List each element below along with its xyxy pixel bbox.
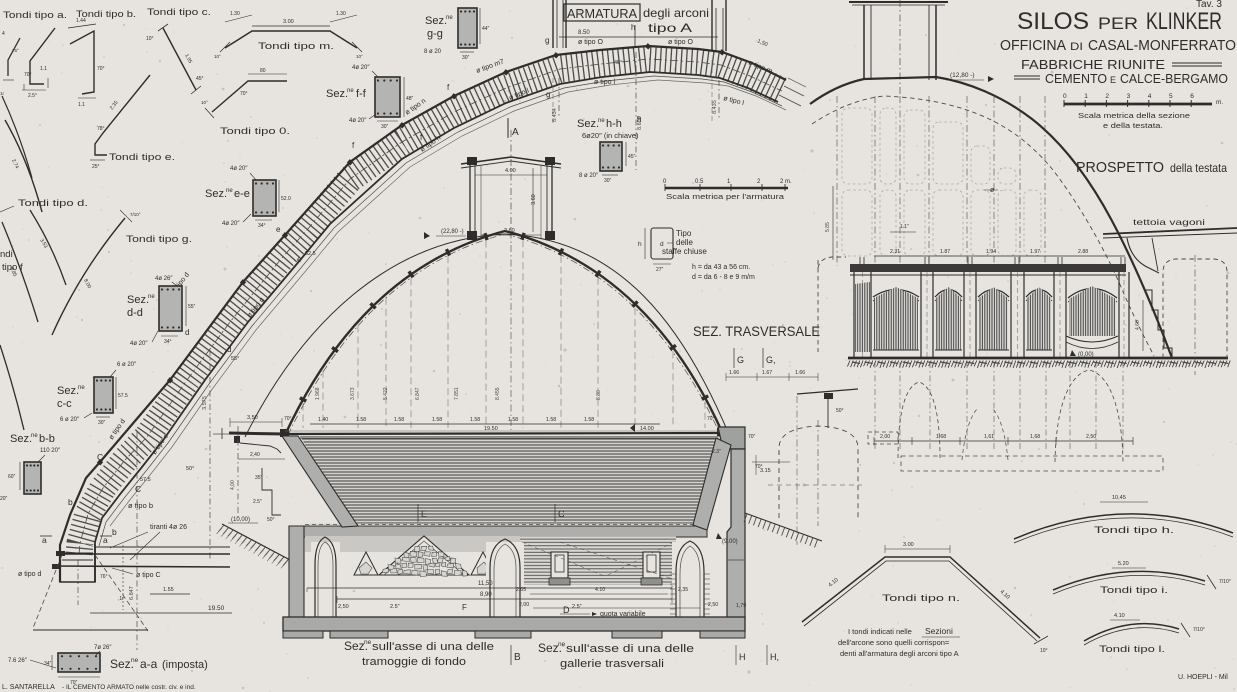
svg-text:Tondi tipo l.: Tondi tipo l. bbox=[1099, 644, 1165, 655]
svg-text:(0,00): (0,00) bbox=[1078, 352, 1094, 358]
svg-text:6.847: 6.847 bbox=[129, 586, 135, 600]
svg-text:m.: m. bbox=[1216, 99, 1223, 106]
svg-text:b-b: b-b bbox=[39, 433, 55, 445]
svg-text:70°: 70° bbox=[707, 416, 715, 422]
svg-text:1.968: 1.968 bbox=[315, 387, 321, 400]
svg-text:11,50: 11,50 bbox=[478, 581, 493, 587]
svg-text:a-a: a-a bbox=[140, 657, 158, 671]
svg-text:78°: 78° bbox=[97, 126, 105, 132]
svg-text:4.00: 4.00 bbox=[505, 168, 516, 174]
svg-text:Tondi tipo i.: Tondi tipo i. bbox=[1100, 585, 1168, 596]
svg-text:ø tipo O: ø tipo O bbox=[578, 39, 603, 46]
svg-text:E: E bbox=[1110, 75, 1116, 85]
svg-text:7/10°: 7/10° bbox=[1193, 627, 1205, 633]
svg-text:4.10: 4.10 bbox=[1114, 613, 1125, 619]
svg-text:3.60: 3.60 bbox=[531, 194, 537, 205]
svg-text:4: 4 bbox=[1148, 93, 1152, 100]
svg-text:60″: 60″ bbox=[8, 474, 16, 480]
svg-text:Sez.: Sez. bbox=[577, 118, 599, 130]
svg-text:ne: ne bbox=[364, 639, 372, 646]
svg-text:1.87: 1.87 bbox=[940, 249, 950, 255]
svg-text:5.85: 5.85 bbox=[825, 222, 831, 232]
svg-text:34″: 34″ bbox=[44, 661, 52, 667]
svg-text:8.455: 8.455 bbox=[495, 387, 501, 400]
svg-text:4.60: 4.60 bbox=[1135, 320, 1141, 330]
svg-text:44″: 44″ bbox=[482, 26, 490, 32]
svg-text:1r: 1r bbox=[0, 91, 5, 96]
svg-text:1.58: 1.58 bbox=[356, 417, 366, 423]
svg-text:30″: 30″ bbox=[462, 55, 470, 61]
svg-text:e-e: e-e bbox=[234, 188, 250, 200]
svg-text:a: a bbox=[103, 535, 108, 545]
svg-text:ø tipo l: ø tipo l bbox=[594, 79, 615, 86]
svg-text:1.66: 1.66 bbox=[729, 370, 739, 376]
svg-text:Tondi tipo c.: Tondi tipo c. bbox=[147, 7, 211, 18]
svg-text:8 ø 20″: 8 ø 20″ bbox=[579, 173, 599, 179]
svg-text:57.5: 57.5 bbox=[118, 393, 128, 399]
svg-text:30″: 30″ bbox=[381, 124, 389, 130]
svg-text:Tondi tipo g.: Tondi tipo g. bbox=[126, 234, 192, 245]
svg-text:(22,80 -): (22,80 -) bbox=[441, 229, 464, 235]
svg-text:ndi: ndi bbox=[0, 249, 13, 260]
svg-text:2.31: 2.31 bbox=[890, 249, 900, 255]
svg-text:staffe chiuse: staffe chiuse bbox=[662, 247, 707, 256]
svg-text:degli arconi: degli arconi bbox=[643, 6, 709, 20]
svg-text:Sez.: Sez. bbox=[127, 294, 149, 306]
svg-text:- IL CEMENTO ARMATO nelle cost: - IL CEMENTO ARMATO nelle costr. civ. e … bbox=[62, 684, 196, 691]
svg-text:1.55: 1.55 bbox=[163, 587, 174, 593]
svg-text:25°: 25° bbox=[92, 164, 100, 170]
svg-text:C: C bbox=[135, 484, 141, 494]
svg-text:ne: ne bbox=[598, 118, 605, 124]
svg-text:35″: 35″ bbox=[255, 475, 263, 481]
svg-text:e: e bbox=[276, 225, 281, 234]
svg-text:4ø 20″: 4ø 20″ bbox=[130, 341, 148, 347]
svg-text:0: 0 bbox=[1063, 93, 1067, 100]
svg-text:55°: 55° bbox=[231, 356, 239, 362]
svg-text:3.15: 3.15 bbox=[760, 468, 771, 474]
svg-text:6.847: 6.847 bbox=[415, 387, 421, 400]
svg-text:SILOS: SILOS bbox=[1017, 8, 1089, 35]
svg-text:e della testata.: e della testata. bbox=[1103, 121, 1163, 130]
svg-text:h = da 43 a 56 cm.: h = da 43 a 56 cm. bbox=[692, 264, 750, 271]
svg-text:30″: 30″ bbox=[604, 178, 612, 184]
svg-text:ne: ne bbox=[78, 385, 85, 391]
svg-text:h-h: h-h bbox=[606, 118, 622, 130]
svg-text:2,00: 2,00 bbox=[519, 602, 529, 608]
svg-text:b: b bbox=[68, 497, 73, 507]
svg-text:14.00: 14.00 bbox=[640, 426, 654, 432]
svg-text:(10,00): (10,00) bbox=[231, 517, 250, 523]
svg-text:50°: 50° bbox=[836, 408, 844, 414]
svg-text:1,68: 1,68 bbox=[936, 434, 946, 440]
svg-text:Tondi tipo m.: Tondi tipo m. bbox=[258, 41, 334, 52]
svg-text:ARMATURA: ARMATURA bbox=[567, 6, 637, 21]
svg-text:sull'asse di una delle: sull'asse di una delle bbox=[566, 643, 694, 655]
svg-text:c-c: c-c bbox=[57, 398, 72, 410]
svg-text:ø tipo O: ø tipo O bbox=[668, 39, 693, 46]
svg-text:52.5: 52.5 bbox=[305, 251, 316, 257]
svg-text:PER: PER bbox=[1098, 14, 1138, 33]
svg-text:KLINKER: KLINKER bbox=[1146, 8, 1222, 35]
svg-text:6 ø 20″: 6 ø 20″ bbox=[117, 362, 137, 368]
svg-text:1.1: 1.1 bbox=[78, 102, 85, 108]
svg-text:H: H bbox=[739, 652, 746, 662]
svg-text:2,50: 2,50 bbox=[708, 602, 718, 608]
svg-text:g: g bbox=[545, 36, 549, 45]
svg-text:B: B bbox=[514, 652, 521, 663]
svg-text:Scala metrica della sezione: Scala metrica della sezione bbox=[1078, 111, 1190, 120]
svg-text:(imposta): (imposta) bbox=[162, 659, 208, 671]
svg-text:7/10°: 7/10° bbox=[1219, 579, 1231, 585]
svg-text:Scala metrica per l'armatura: Scala metrica per l'armatura bbox=[666, 192, 785, 201]
svg-text:6ø20″ (in chiave): 6ø20″ (in chiave) bbox=[582, 131, 639, 140]
svg-text:8,90: 8,90 bbox=[480, 592, 492, 598]
svg-text:ne: ne bbox=[347, 88, 354, 94]
svg-text:5.20: 5.20 bbox=[1118, 561, 1129, 567]
svg-text:(9.00): (9.00) bbox=[722, 539, 738, 545]
svg-text:ø: ø bbox=[990, 187, 995, 194]
svg-text:della testata: della testata bbox=[1170, 161, 1227, 175]
svg-text:70°: 70° bbox=[240, 91, 248, 97]
svg-text:DI: DI bbox=[1070, 41, 1083, 53]
svg-text:10°: 10° bbox=[146, 36, 154, 42]
svg-text:ne: ne bbox=[558, 641, 566, 648]
svg-text:48″: 48″ bbox=[406, 96, 414, 102]
svg-text:Tondi tipo h.: Tondi tipo h. bbox=[1094, 525, 1174, 536]
svg-text:8.80: 8.80 bbox=[596, 390, 602, 400]
svg-text:L. SANTARELLA: L. SANTARELLA bbox=[2, 684, 55, 691]
svg-text:34°: 34° bbox=[258, 223, 266, 229]
svg-text:I tondi indicati nelle: I tondi indicati nelle bbox=[848, 627, 912, 636]
svg-text:70″: 70″ bbox=[748, 434, 756, 440]
svg-text:3,50: 3,50 bbox=[247, 415, 258, 421]
svg-text:70°: 70° bbox=[284, 416, 292, 422]
svg-text:tiranti 4ø 26: tiranti 4ø 26 bbox=[150, 524, 187, 531]
svg-text:3.575: 3.575 bbox=[202, 396, 208, 410]
svg-text:5: 5 bbox=[1169, 93, 1173, 100]
svg-text:1.67: 1.67 bbox=[762, 370, 772, 376]
svg-text:d = da 6 - 8 e 9 m/m: d = da 6 - 8 e 9 m/m bbox=[692, 274, 755, 281]
svg-text:8 ø 20: 8 ø 20 bbox=[424, 49, 442, 55]
svg-text:7ø 26″: 7ø 26″ bbox=[94, 645, 112, 651]
svg-text:G: G bbox=[737, 355, 744, 365]
svg-text:f-f: f-f bbox=[356, 88, 367, 100]
svg-text:ne: ne bbox=[226, 188, 233, 194]
svg-text:F: F bbox=[462, 603, 467, 612]
svg-text:10°: 10° bbox=[201, 100, 208, 105]
svg-text:1.66: 1.66 bbox=[795, 370, 805, 376]
svg-text:45°: 45° bbox=[614, 60, 622, 66]
svg-text:76°: 76° bbox=[12, 48, 19, 53]
svg-text:57.5: 57.5 bbox=[140, 477, 151, 483]
svg-text:ø tipo d: ø tipo d bbox=[18, 571, 41, 578]
svg-text:CEMENTO: CEMENTO bbox=[1045, 72, 1107, 86]
svg-text:1.1″: 1.1″ bbox=[900, 224, 909, 230]
svg-text:1.44: 1.44 bbox=[76, 18, 86, 24]
svg-text:7.851: 7.851 bbox=[454, 387, 460, 400]
svg-text:d: d bbox=[185, 328, 189, 337]
svg-text:1.97: 1.97 bbox=[1030, 249, 1040, 255]
svg-text:2.5″: 2.5″ bbox=[572, 604, 582, 610]
svg-text:45°: 45° bbox=[196, 76, 204, 82]
svg-text:34°: 34° bbox=[164, 339, 172, 345]
svg-text:D: D bbox=[563, 605, 570, 615]
svg-text:10°: 10° bbox=[214, 54, 221, 59]
svg-text:H,: H, bbox=[770, 652, 779, 662]
svg-text:e: e bbox=[297, 255, 302, 264]
svg-text:Tondi tipo 0.: Tondi tipo 0. bbox=[220, 126, 290, 137]
svg-text:1.40: 1.40 bbox=[318, 417, 328, 423]
svg-text:1.30: 1.30 bbox=[336, 11, 346, 17]
svg-text:4ø 20″: 4ø 20″ bbox=[349, 118, 367, 124]
svg-text:4ø 20″: 4ø 20″ bbox=[352, 65, 370, 71]
svg-text:27″: 27″ bbox=[656, 267, 664, 273]
svg-text:2,00: 2,00 bbox=[880, 434, 890, 440]
svg-text:Tondi tipo n.: Tondi tipo n. bbox=[882, 593, 960, 604]
svg-text:2,50: 2,50 bbox=[338, 604, 349, 610]
svg-text:C: C bbox=[97, 452, 103, 462]
svg-text:50°: 50° bbox=[186, 466, 194, 472]
svg-text:Tondi tipo d.: Tondi tipo d. bbox=[18, 198, 88, 209]
svg-text:3: 3 bbox=[1127, 93, 1131, 100]
svg-text:19.50: 19.50 bbox=[208, 605, 225, 612]
svg-text:2.5″: 2.5″ bbox=[253, 499, 262, 505]
svg-text:3.673: 3.673 bbox=[350, 387, 356, 400]
svg-text:2,35: 2,35 bbox=[678, 587, 688, 593]
svg-text:1.58: 1.58 bbox=[470, 417, 480, 423]
svg-text:1.94: 1.94 bbox=[986, 249, 996, 255]
svg-text:70°: 70° bbox=[24, 72, 32, 78]
svg-text:52.0: 52.0 bbox=[281, 196, 291, 202]
svg-text:55″: 55″ bbox=[188, 304, 196, 310]
svg-text:,1r: ,1r bbox=[118, 596, 124, 602]
svg-text:2.5″: 2.5″ bbox=[390, 604, 400, 610]
svg-text:Sez.: Sez. bbox=[10, 433, 32, 445]
svg-text:80: 80 bbox=[260, 68, 266, 74]
svg-text:(12,80 -): (12,80 -) bbox=[950, 72, 975, 79]
svg-text:2.3″: 2.3″ bbox=[712, 449, 721, 455]
svg-text:1.58: 1.58 bbox=[546, 417, 556, 423]
svg-text:a: a bbox=[42, 535, 47, 545]
svg-text:1: 1 bbox=[1084, 93, 1088, 100]
svg-text:SEZ. TRASVERSALE: SEZ. TRASVERSALE bbox=[693, 324, 820, 339]
svg-text:Tipo: Tipo bbox=[676, 229, 692, 238]
svg-text:tettoia vagoni: tettoia vagoni bbox=[1133, 217, 1205, 227]
svg-text:delle: delle bbox=[676, 238, 693, 247]
svg-text:2,50: 2,50 bbox=[1086, 434, 1096, 440]
svg-text:6 ø 20″: 6 ø 20″ bbox=[60, 417, 80, 423]
svg-text:g: g bbox=[546, 90, 550, 99]
svg-text:A: A bbox=[512, 127, 519, 138]
svg-text:Tondi tipo a.: Tondi tipo a. bbox=[3, 10, 67, 21]
svg-text:76°: 76° bbox=[100, 574, 108, 580]
svg-text:g-g: g-g bbox=[427, 28, 443, 40]
svg-text:denti all'armatura degli arcon: denti all'armatura degli arconi tipo A bbox=[840, 649, 959, 658]
svg-text:1.58: 1.58 bbox=[432, 417, 442, 423]
svg-text:C: C bbox=[558, 509, 565, 519]
svg-text:Sezioni: Sezioni bbox=[925, 626, 953, 636]
svg-text:tipo A: tipo A bbox=[648, 21, 692, 35]
svg-text:1,68: 1,68 bbox=[1030, 434, 1040, 440]
svg-text:FABBRICHE RIUNITE: FABBRICHE RIUNITE bbox=[1021, 57, 1165, 72]
svg-text:2.88: 2.88 bbox=[1078, 249, 1088, 255]
svg-text:PROSPETTO: PROSPETTO bbox=[1076, 160, 1164, 176]
svg-text:ne: ne bbox=[131, 657, 139, 664]
svg-text:2 m.: 2 m. bbox=[780, 179, 792, 185]
svg-text:U. HOEPLI - Mil: U. HOEPLI - Mil bbox=[1178, 674, 1228, 681]
svg-text:2,40: 2,40 bbox=[250, 452, 260, 458]
svg-text:Sez.: Sez. bbox=[57, 385, 79, 397]
svg-text:10°: 10° bbox=[1040, 648, 1048, 654]
svg-text:1.58: 1.58 bbox=[584, 417, 594, 423]
svg-text:2: 2 bbox=[1105, 93, 1109, 100]
svg-text:20″: 20″ bbox=[0, 496, 8, 502]
svg-text:OFFICINA: OFFICINA bbox=[1000, 37, 1066, 54]
svg-text:10°: 10° bbox=[356, 54, 363, 59]
svg-text:8.50: 8.50 bbox=[578, 30, 590, 36]
svg-text:h: h bbox=[637, 115, 641, 124]
svg-text:Sez.: Sez. bbox=[425, 15, 447, 27]
svg-text:1,61: 1,61 bbox=[984, 434, 994, 440]
svg-text:7.6 26″: 7.6 26″ bbox=[8, 658, 28, 664]
svg-text:dell'arcone sono quelli corris: dell'arcone sono quelli corrispon= bbox=[838, 638, 950, 647]
svg-text:6: 6 bbox=[1190, 93, 1194, 100]
svg-text:sull'asse di una delle: sull'asse di una delle bbox=[372, 641, 494, 653]
svg-text:1,79: 1,79 bbox=[736, 603, 746, 609]
svg-text:4ø 20″: 4ø 20″ bbox=[230, 166, 248, 172]
svg-text:110 20″: 110 20″ bbox=[40, 448, 61, 454]
svg-text:G,: G, bbox=[766, 355, 776, 365]
svg-text:E: E bbox=[421, 509, 427, 519]
svg-text:d: d bbox=[227, 345, 231, 354]
svg-text:gallerie trasversali: gallerie trasversali bbox=[560, 658, 664, 670]
svg-text:70°: 70° bbox=[97, 66, 105, 72]
svg-text:45″: 45″ bbox=[628, 154, 636, 160]
svg-text:1.58: 1.58 bbox=[394, 417, 404, 423]
svg-text:ne: ne bbox=[148, 294, 155, 300]
svg-text:30″: 30″ bbox=[98, 420, 106, 426]
svg-text:4ø 26″: 4ø 26″ bbox=[155, 276, 173, 282]
svg-text:7/10°: 7/10° bbox=[130, 212, 141, 217]
svg-text:CALCE-BERGAMO: CALCE-BERGAMO bbox=[1120, 72, 1228, 86]
svg-text:10,45: 10,45 bbox=[1112, 495, 1126, 501]
svg-text:0.5: 0.5 bbox=[695, 179, 704, 185]
svg-text:1.58: 1.58 bbox=[508, 417, 518, 423]
svg-text:50°: 50° bbox=[267, 517, 275, 523]
svg-text:4: 4 bbox=[2, 31, 5, 37]
svg-text:h: h bbox=[638, 241, 642, 248]
svg-text:3.00: 3.00 bbox=[903, 542, 914, 548]
svg-text:tramoggie di fondo: tramoggie di fondo bbox=[362, 656, 466, 668]
svg-text:3.00: 3.00 bbox=[283, 19, 294, 25]
svg-text:quota variabile: quota variabile bbox=[600, 611, 646, 618]
svg-text:ne: ne bbox=[31, 433, 38, 439]
svg-text:5.422: 5.422 bbox=[383, 387, 389, 400]
svg-text:1.1: 1.1 bbox=[40, 66, 47, 72]
svg-text:8.435: 8.435 bbox=[712, 100, 718, 114]
svg-text:ne: ne bbox=[446, 15, 453, 21]
svg-text:Sez.: Sez. bbox=[326, 88, 348, 100]
svg-text:2.5°: 2.5° bbox=[28, 93, 37, 99]
svg-text:ø tipo C: ø tipo C bbox=[136, 572, 161, 579]
svg-text:d-d: d-d bbox=[127, 307, 143, 319]
svg-text:b: b bbox=[112, 527, 117, 537]
svg-text:ø tipo b: ø tipo b bbox=[128, 501, 153, 510]
svg-text:1.30: 1.30 bbox=[230, 11, 240, 17]
svg-text:Tondi tipo e.: Tondi tipo e. bbox=[109, 152, 175, 163]
svg-text:CASAL-MONFERRATO: CASAL-MONFERRATO bbox=[1088, 37, 1236, 54]
svg-text:4,00: 4,00 bbox=[230, 480, 236, 490]
svg-text:4ø 20″: 4ø 20″ bbox=[222, 221, 240, 227]
svg-text:Sez.: Sez. bbox=[205, 188, 227, 200]
